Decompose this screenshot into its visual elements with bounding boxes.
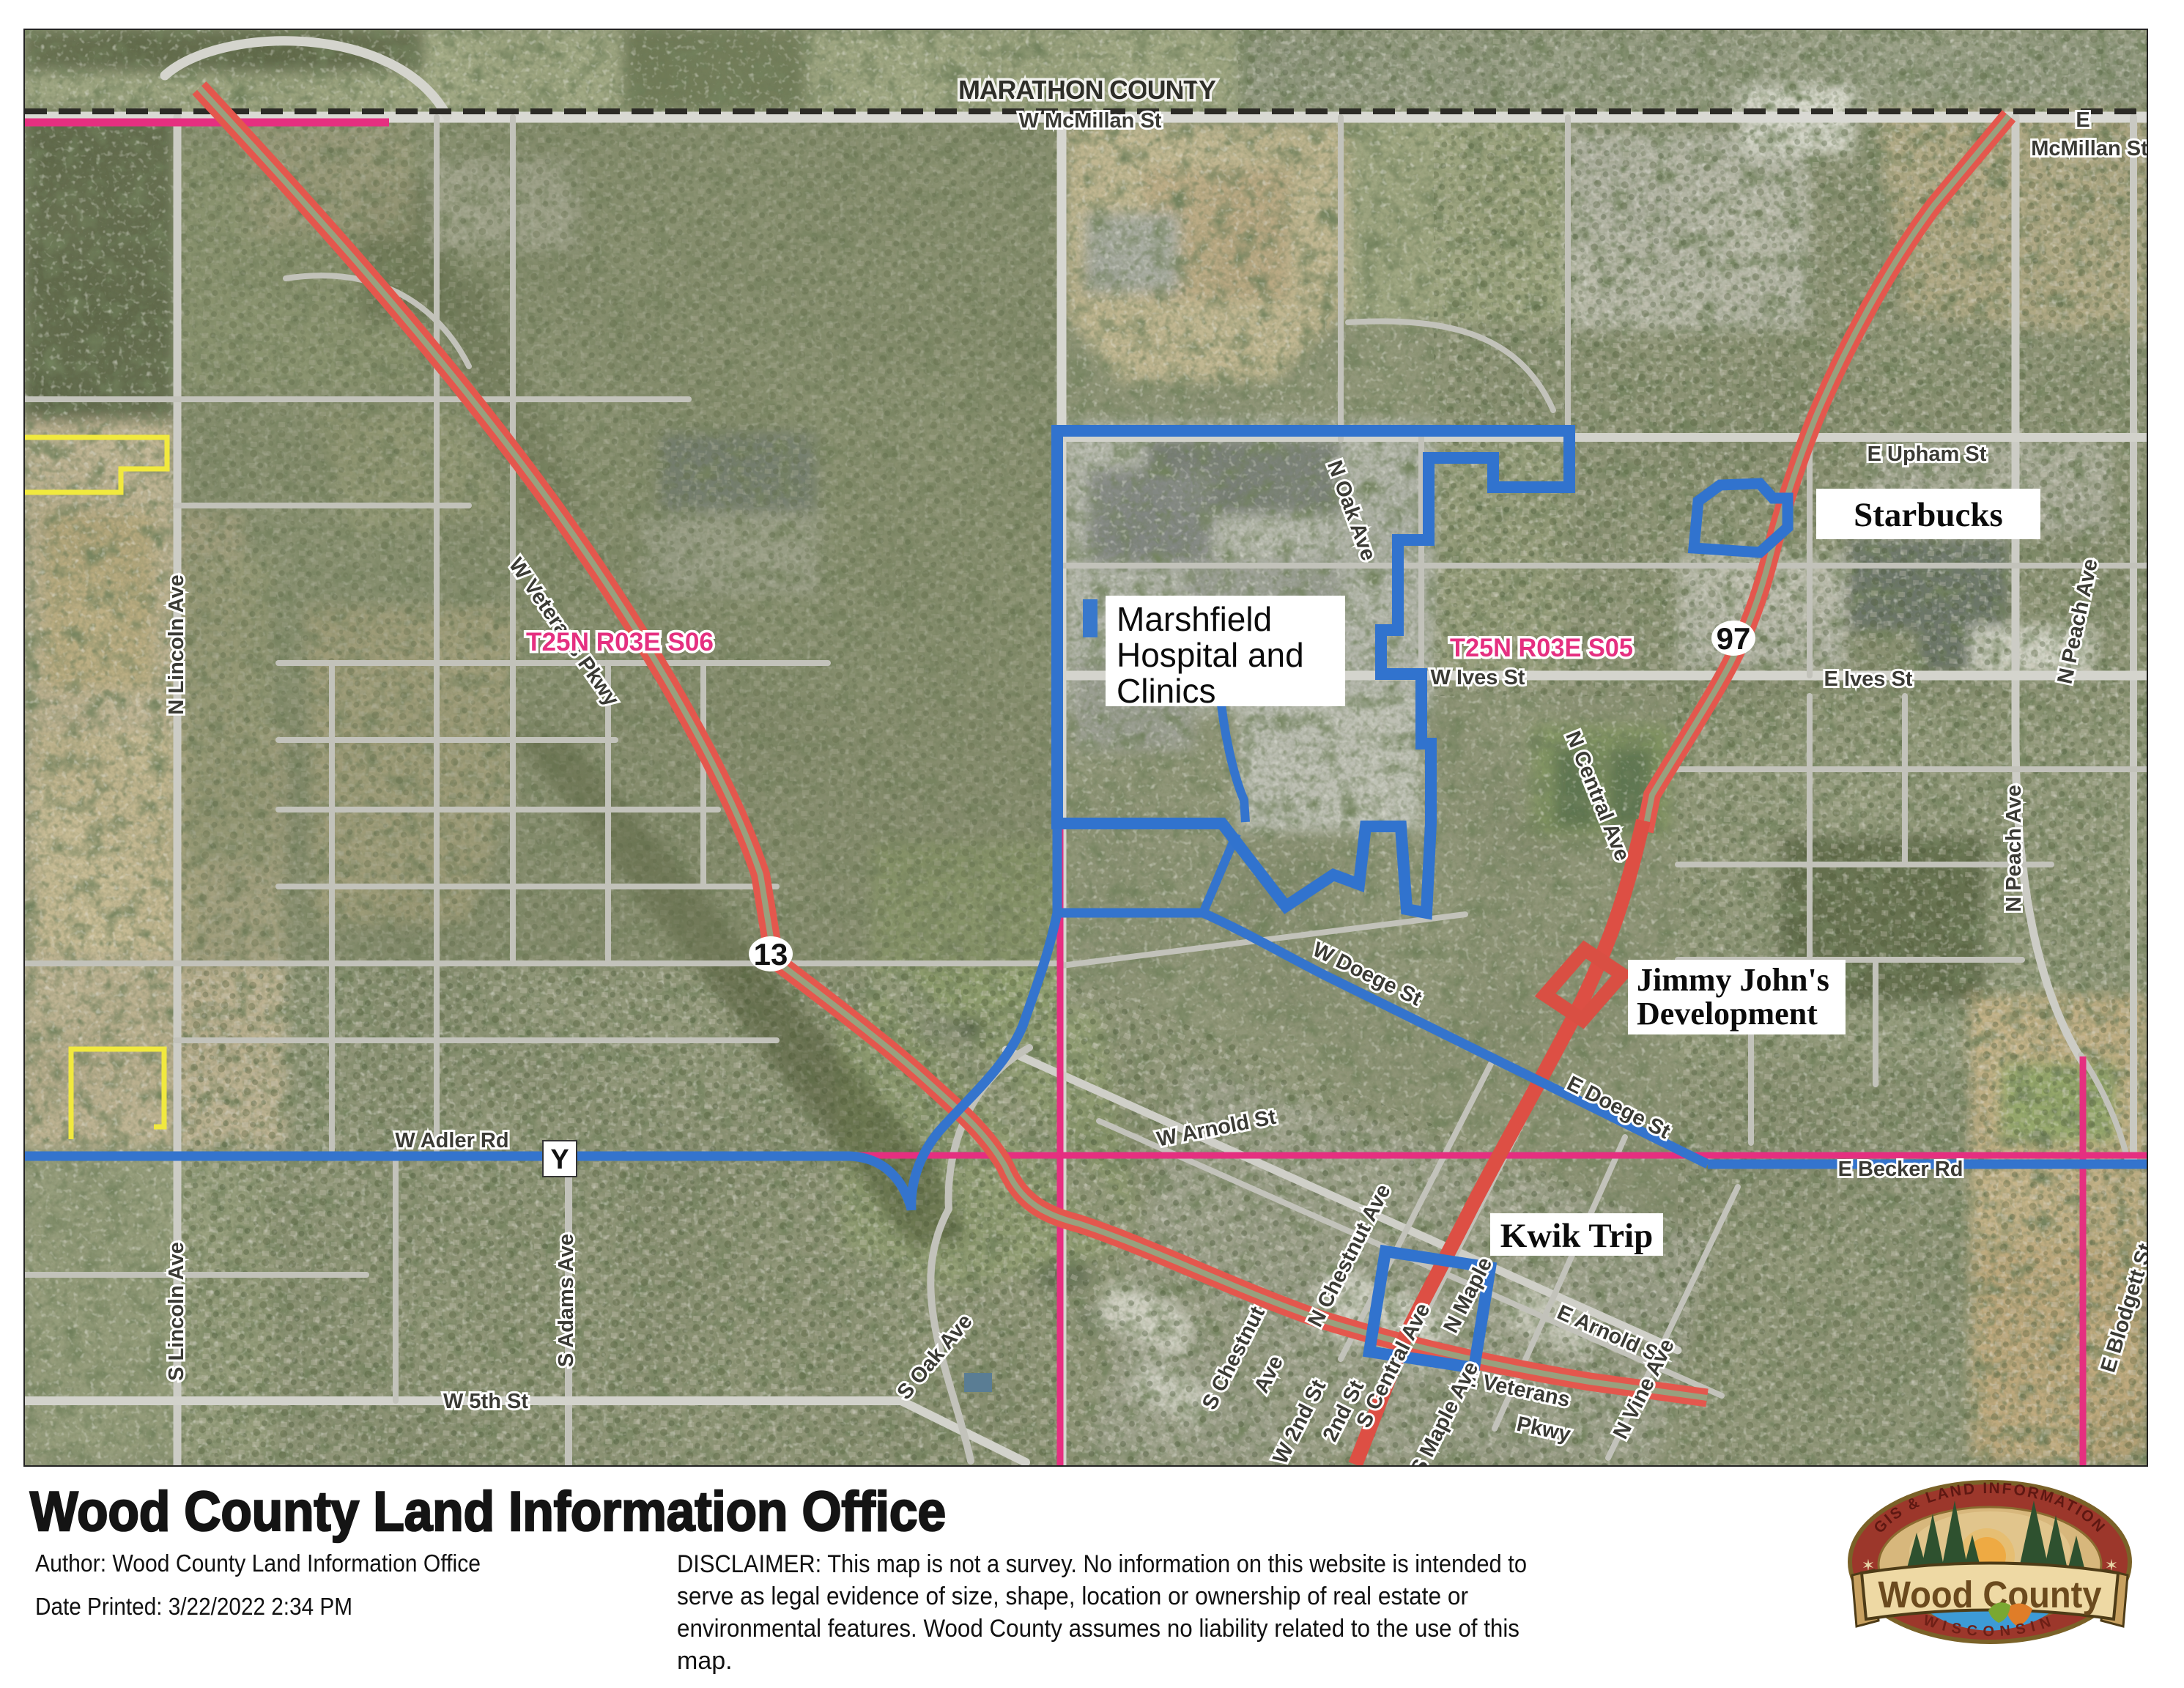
svg-text:Wood County Land Information O: Wood County Land Information Office: [30, 1481, 946, 1543]
svg-text:E Upham St: E Upham St: [1867, 443, 1987, 466]
svg-text:Clinics: Clinics: [1117, 672, 1215, 710]
svg-text:T25N R03E S05: T25N R03E S05: [1450, 634, 1633, 662]
svg-text:E Ives St: E Ives St: [1824, 667, 1913, 691]
svg-text:Date Printed: 3/22/2022 2:34 P: Date Printed: 3/22/2022 2:34 PM: [35, 1593, 352, 1620]
svg-text:MARATHON COUNTY: MARATHON COUNTY: [958, 75, 1216, 105]
svg-text:environmental features. Wood C: environmental features. Wood County assu…: [677, 1615, 1519, 1643]
svg-text:97: 97: [1717, 621, 1751, 656]
svg-text:W McMillan St: W McMillan St: [1019, 109, 1162, 133]
svg-text:Development: Development: [1637, 996, 1818, 1032]
svg-text:N Lincoln Ave: N Lincoln Ave: [165, 574, 188, 714]
svg-text:Kwik Trip: Kwik Trip: [1500, 1217, 1654, 1255]
svg-text:Y: Y: [550, 1144, 569, 1175]
svg-text:Starbucks: Starbucks: [1854, 496, 2003, 534]
svg-text:Jimmy John's: Jimmy John's: [1637, 962, 1829, 998]
svg-text:N Peach Ave: N Peach Ave: [2002, 785, 2026, 912]
svg-text:13: 13: [754, 937, 788, 971]
svg-text:map.: map.: [677, 1647, 733, 1675]
svg-text:McMillan St: McMillan St: [2031, 137, 2148, 160]
svg-text:DISCLAIMER: This map is not a: DISCLAIMER: This map is not a survey. No…: [677, 1550, 1527, 1578]
svg-text:T25N R03E S06: T25N R03E S06: [526, 628, 714, 656]
svg-text:E: E: [2076, 108, 2089, 132]
svg-text:Author: Wood County Land Infor: Author: Wood County Land Information Off…: [35, 1550, 481, 1577]
svg-text:W Adler Rd: W Adler Rd: [395, 1129, 508, 1152]
svg-text:W 5th St: W 5th St: [443, 1390, 528, 1413]
svg-text:S Adams Ave: S Adams Ave: [555, 1234, 578, 1367]
svg-text:serve as legal evidence of siz: serve as legal evidence of size, shape, …: [677, 1582, 1468, 1610]
svg-text:S Lincoln Ave: S Lincoln Ave: [165, 1242, 188, 1381]
svg-text:Marshfield: Marshfield: [1117, 600, 1272, 638]
svg-text:Hospital and: Hospital and: [1117, 636, 1304, 674]
svg-text:E Becker Rd: E Becker Rd: [1838, 1158, 1963, 1181]
svg-text:W Ives St: W Ives St: [1431, 666, 1525, 689]
